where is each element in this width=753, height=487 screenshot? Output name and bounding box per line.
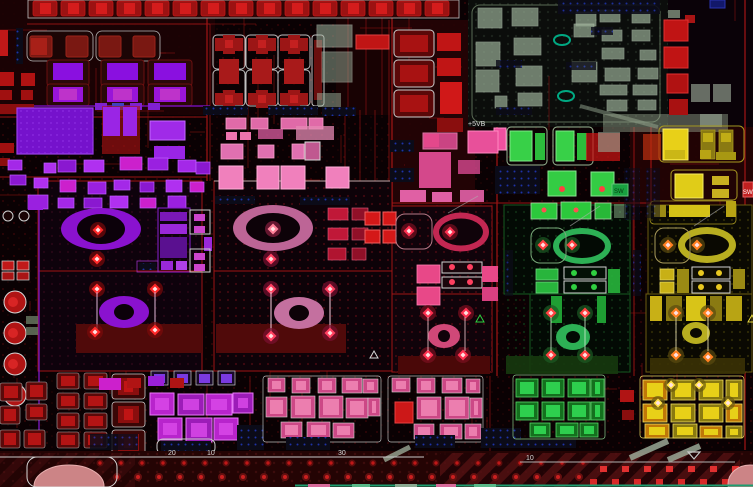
svg-text:10: 10 <box>207 450 215 457</box>
svg-text:SW: SW <box>614 189 624 195</box>
svg-text:SW: SW <box>743 190 753 196</box>
svg-text:+5VB: +5VB <box>468 121 486 128</box>
svg-text:30: 30 <box>338 450 346 457</box>
svg-text:10: 10 <box>526 455 534 462</box>
svg-text:20: 20 <box>168 450 176 457</box>
